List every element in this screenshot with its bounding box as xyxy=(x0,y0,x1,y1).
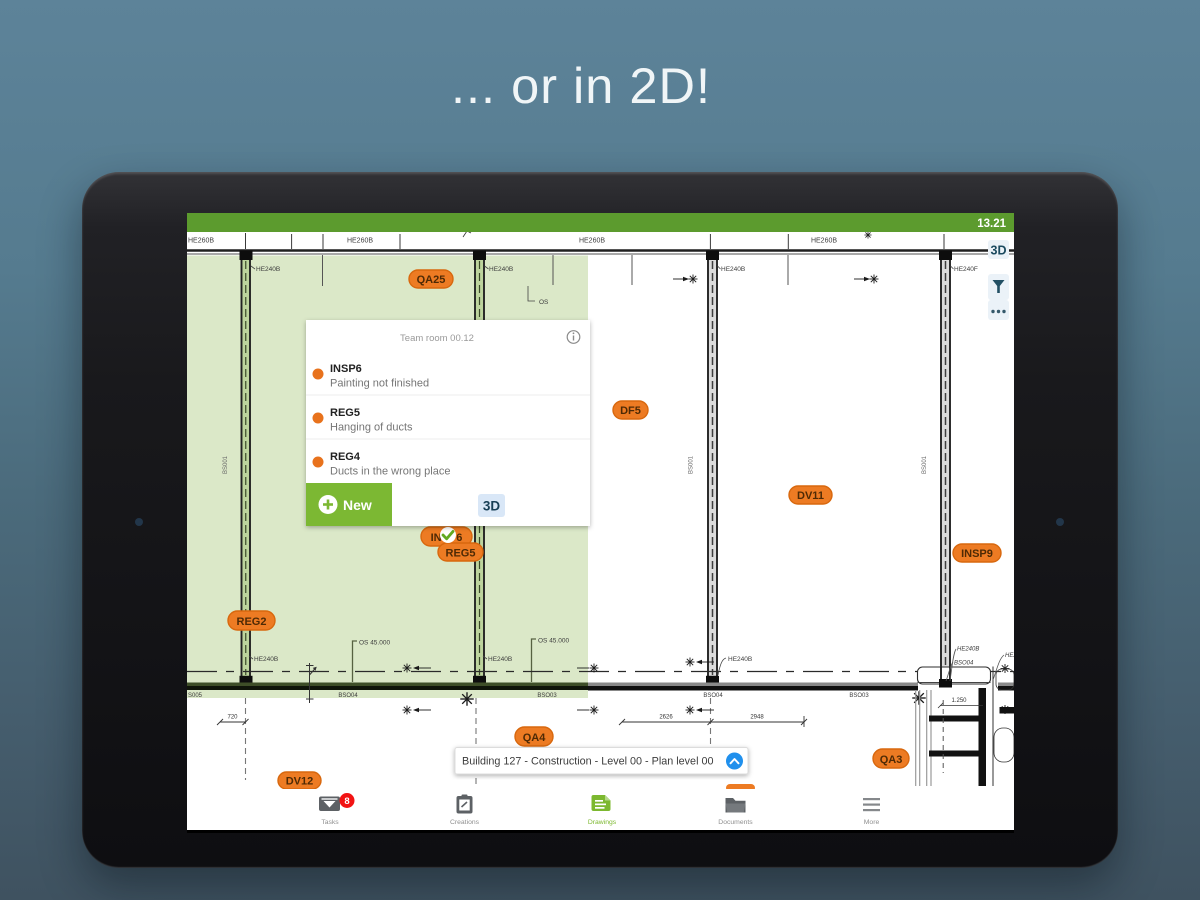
svg-text:HE260B: HE260B xyxy=(188,238,214,245)
svg-text:HE240B: HE240B xyxy=(256,266,280,273)
svg-text:HE240B: HE240B xyxy=(728,656,752,663)
svg-text:REG2: REG2 xyxy=(237,616,267,628)
svg-text:DV11: DV11 xyxy=(797,490,824,502)
svg-text:REG4: REG4 xyxy=(330,451,361,463)
svg-text:2948: 2948 xyxy=(750,715,764,721)
svg-text:Ducts in the wrong place: Ducts in the wrong place xyxy=(330,466,450,478)
svg-text:BSO04: BSO04 xyxy=(954,661,974,667)
svg-text:BSO03: BSO03 xyxy=(849,693,869,699)
svg-text:Drawings: Drawings xyxy=(588,819,617,826)
svg-text:HE240F: HE240F xyxy=(954,266,978,273)
svg-text:OS: OS xyxy=(539,299,549,306)
svg-text:HE240B: HE240B xyxy=(721,266,745,273)
svg-text:HE240B: HE240B xyxy=(489,266,513,273)
svg-text:BS001: BS001 xyxy=(922,455,928,474)
svg-text:DF5: DF5 xyxy=(620,405,641,417)
svg-text:BS001: BS001 xyxy=(689,455,695,474)
svg-text:3D: 3D xyxy=(483,499,501,514)
svg-text:Team room 00.12: Team room 00.12 xyxy=(400,333,474,344)
svg-text:3D: 3D xyxy=(991,244,1007,258)
svg-text:Hanging of ducts: Hanging of ducts xyxy=(330,422,413,434)
svg-text:HE240B: HE240B xyxy=(488,656,512,663)
svg-text:HE240B: HE240B xyxy=(254,656,278,663)
svg-text:INSP6: INSP6 xyxy=(330,363,362,375)
svg-text:1.250: 1.250 xyxy=(951,698,967,704)
svg-text:BSO03: BSO03 xyxy=(537,693,557,699)
svg-text:BS001: BS001 xyxy=(223,455,229,474)
svg-text:QA3: QA3 xyxy=(880,754,903,766)
svg-text:DV12: DV12 xyxy=(286,776,314,788)
svg-text:Painting not finished: Painting not finished xyxy=(330,378,429,390)
svg-text:Building 127 - Construction -: Building 127 - Construction - Level 00 -… xyxy=(462,756,713,768)
svg-text:HE240B: HE240B xyxy=(957,647,979,653)
svg-text:QA4: QA4 xyxy=(523,732,547,744)
svg-text:INSP9: INSP9 xyxy=(961,548,993,560)
svg-text:BSO04: BSO04 xyxy=(703,693,723,699)
svg-text:New: New xyxy=(343,497,372,513)
svg-text:REG5: REG5 xyxy=(330,407,360,419)
svg-text:QA25: QA25 xyxy=(417,274,446,286)
svg-text:HE260B: HE260B xyxy=(579,238,605,245)
svg-text:HE260B: HE260B xyxy=(811,238,837,245)
svg-text:Documents: Documents xyxy=(718,819,753,826)
svg-text:Creations: Creations xyxy=(450,819,480,826)
svg-text:8: 8 xyxy=(344,796,349,807)
svg-text:BSO04: BSO04 xyxy=(338,693,358,699)
svg-text:REG5: REG5 xyxy=(446,548,476,560)
svg-text:OS 45.000: OS 45.000 xyxy=(538,638,569,645)
svg-text:HE260B: HE260B xyxy=(347,238,373,245)
svg-text:Tasks: Tasks xyxy=(321,819,339,826)
svg-text:More: More xyxy=(864,819,880,826)
svg-text:HE24: HE24 xyxy=(1005,653,1014,659)
svg-text:2626: 2626 xyxy=(659,715,673,721)
svg-text:720: 720 xyxy=(227,715,238,721)
svg-text:13.21: 13.21 xyxy=(977,218,1006,230)
svg-text:OS 45.000: OS 45.000 xyxy=(359,640,390,647)
svg-text:S005: S005 xyxy=(188,693,203,699)
